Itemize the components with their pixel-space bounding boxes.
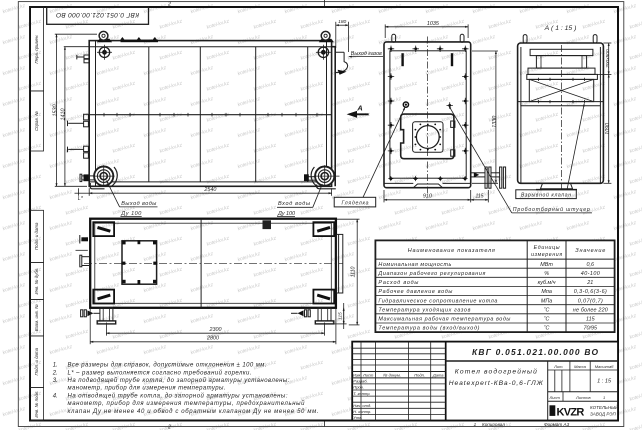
svg-text:2.: 2. [52,370,58,376]
svg-text:1.: 1. [53,363,58,369]
svg-text:ЗАВОД РЭП: ЗАВОД РЭП [590,412,617,417]
svg-text:Гидравлическое сопротивление к: Гидравлическое сопротивление котла [378,298,497,304]
svg-text:Гляделка: Гляделка [342,201,369,207]
svg-text:Номинальная мощность: Номинальная мощность [378,262,451,268]
svg-text:%: % [544,271,549,277]
svg-text:Рабочее давление воды: Рабочее давление воды [378,289,452,295]
svg-text:Значение: Значение [575,248,605,254]
svg-text:Подп.: Подп. [414,372,425,377]
svg-text:Пробоотборный штуцер: Пробоотборный штуцер [513,206,590,213]
svg-text:Температура уходящих газов: Температура уходящих газов [378,307,470,313]
svg-text:Подп. и дата: Подп. и дата [34,347,39,375]
svg-text:˚С: ˚С [544,325,550,332]
svg-text:910: 910 [423,194,432,200]
svg-text:Диапазон рабочего регулировани: Диапазон рабочего регулирования [377,271,485,277]
svg-text:4.: 4. [53,393,58,399]
svg-text:70/95: 70/95 [584,326,598,332]
svg-text:Все размеры для справок, допус: Все размеры для справок, допустимые откл… [68,363,267,369]
svg-text:МПа: МПа [541,298,552,304]
svg-text:2: 2 [167,425,171,430]
svg-text:L*: L* [78,196,84,202]
svg-text:180: 180 [338,19,346,25]
svg-text:Лит.: Лит. [553,364,563,369]
svg-text:Масса: Масса [574,364,587,369]
svg-text:Утв.: Утв. [353,415,362,420]
svg-text:А: А [356,103,362,112]
svg-text:115: 115 [476,194,484,200]
svg-text:Единицы: Единицы [534,245,560,251]
svg-text:клапан Ду не менее 40 и обвод: клапан Ду не менее 40 и обвод с обратным… [68,409,319,415]
svg-text:2540: 2540 [203,187,216,193]
svg-text:Лист: Лист [362,372,374,377]
svg-text:KVZR: KVZR [557,406,585,418]
svg-text:Heatexpert-КВа-0,6-ГЛЖ: Heatexpert-КВа-0,6-ГЛЖ [449,380,544,387]
svg-text:Копировал: Копировал [482,422,505,427]
svg-text:Формат А3: Формат А3 [544,422,570,427]
svg-text:Взам. инв. №: Взам. инв. № [34,304,39,331]
svg-text:Выход газов: Выход газов [351,51,382,57]
svg-text:1530: 1530 [52,105,58,117]
svg-text:Взрывной клапан: Взрывной клапан [521,192,571,199]
svg-text:КВГ 0.051.021.00.000 ВО: КВГ 0.051.021.00.000 ВО [56,11,139,18]
svg-text:куб.м/ч: куб.м/ч [538,280,556,286]
svg-text:КОТЕЛЬНЫЙ: КОТЕЛЬНЫЙ [590,403,619,410]
svg-text:Вход воды: Вход воды [278,201,310,207]
svg-text:не более 220: не более 220 [573,307,608,313]
svg-text:Мпа: Мпа [541,289,551,295]
svg-text:0,3-0,6(3-6): 0,3-0,6(3-6) [574,289,607,295]
svg-text:3.: 3. [53,378,58,384]
svg-text:21: 21 [586,280,593,286]
svg-text:40-100: 40-100 [581,271,600,277]
svg-text:Перв. примен.: Перв. примен. [34,34,39,63]
svg-text:Инв. № подл.: Инв. № подл. [34,390,39,417]
svg-text:200х500: 200х500 [605,49,611,69]
svg-text:2300: 2300 [209,327,222,333]
svg-text:Расход воды: Расход воды [378,280,418,286]
svg-text:L* – размер выполняется соглас: L* – размер выполняется согласно требова… [68,369,252,376]
svg-text:Изм: Изм [353,372,361,377]
svg-text:˚С: ˚С [544,306,550,313]
svg-text:2800: 2800 [206,336,219,342]
svg-text:Разраб.: Разраб. [353,379,367,384]
svg-text:115: 115 [586,317,596,323]
svg-text:измерения: измерения [531,252,562,258]
svg-text:Котел водогрейный: Котел водогрейный [455,367,537,375]
svg-text:МВт: МВт [540,262,553,268]
svg-text:Температура воды (вход/выход): Температура воды (вход/выход) [378,326,479,332]
svg-text:1410: 1410 [61,109,67,121]
svg-text:Т. контр.: Т. контр. [353,391,370,396]
svg-text:Дата: Дата [432,372,444,377]
svg-text:Н. контр.: Н. контр. [353,409,371,414]
svg-text:Масштаб: Масштаб [595,364,614,369]
svg-text:1090: 1090 [605,123,611,135]
svg-text:А ( 1 : 15 ): А ( 1 : 15 ) [544,25,577,32]
svg-text:№ докум.: № докум. [383,372,401,377]
svg-text:Инв. № дубл.: Инв. № дубл. [34,267,39,294]
svg-text:1035: 1035 [427,21,440,27]
svg-text:Нач. отд.: Нач. отд. [353,403,371,408]
svg-text:Наименование показателя: Наименование показателя [408,248,495,254]
svg-text:1330: 1330 [492,116,498,128]
svg-text:1 : 15: 1 : 15 [597,378,612,384]
svg-text:0,07(0,7): 0,07(0,7) [578,298,603,304]
svg-text:На подводящей трубе котла, до: На подводящей трубе котла, до запорной а… [68,377,290,384]
svg-text:На отводящей трубе котла, до з: На отводящей трубе котла, до запорной ар… [68,392,288,399]
svg-text:Лист: Лист [549,395,561,400]
svg-text:Максимальная рабочая температу: Максимальная рабочая температура воды [378,317,510,323]
svg-text:манометр, прибор для измерения: манометр, прибор для измерения температу… [68,386,226,392]
svg-text:˚С: ˚С [544,316,550,323]
svg-text:1: 1 [603,395,605,400]
svg-text:Подп. и дата: Подп. и дата [34,222,39,250]
svg-text:1110: 1110 [351,267,357,278]
svg-text:1: 1 [474,422,477,427]
svg-text:Выход воды: Выход воды [121,201,156,207]
svg-text:Справ. №: Справ. № [34,111,39,131]
svg-text:манометр, прибор для измерения: манометр, прибор для измерения температу… [68,400,306,407]
svg-text:Пров.: Пров. [353,385,364,390]
svg-text:0,6: 0,6 [587,262,595,268]
svg-text:Листов: Листов [575,395,591,400]
svg-text:115: 115 [338,312,343,320]
